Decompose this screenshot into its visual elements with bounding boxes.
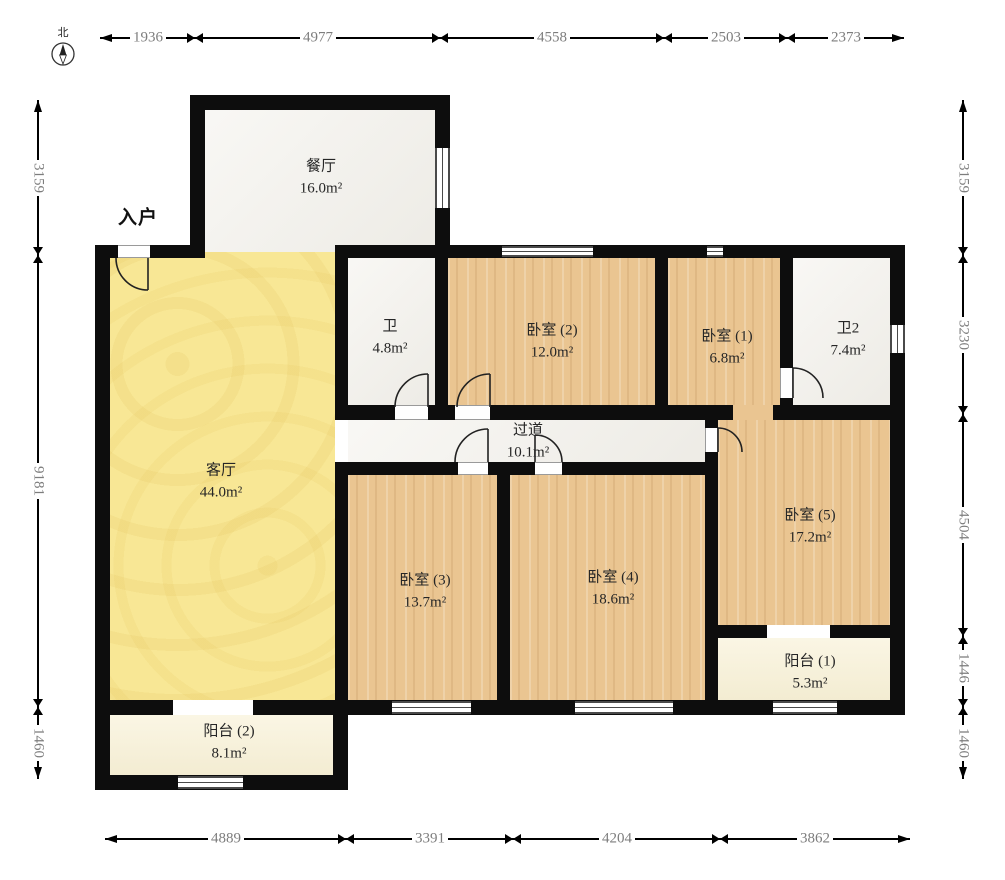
wall-segment bbox=[190, 95, 450, 110]
wall-segment bbox=[335, 245, 348, 420]
room-area: 4.8m² bbox=[373, 338, 408, 360]
door-threshold bbox=[535, 462, 562, 475]
room-area: 10.1m² bbox=[507, 442, 549, 464]
dim-arrow bbox=[892, 34, 904, 42]
room-name: 卧室 (5) bbox=[784, 505, 835, 527]
room-label-dining: 餐厅 16.0m² bbox=[300, 156, 342, 200]
dim-label: 4889 bbox=[208, 831, 244, 848]
bedroom1-opening bbox=[733, 405, 773, 420]
floor-plan: 餐厅 16.0m² 客厅 44.0m² 卫 4.8m² 卧室 (2) 12.0m… bbox=[0, 0, 1005, 880]
bedroom3-door-arc bbox=[455, 429, 489, 463]
room-label-bedroom4: 卧室 (4) 18.6m² bbox=[587, 567, 638, 611]
window bbox=[773, 701, 837, 714]
dim-label: 2373 bbox=[828, 30, 864, 47]
room-label-bath1: 卫 4.8m² bbox=[373, 316, 408, 360]
compass-north-label: 北 bbox=[58, 26, 69, 39]
dim-line-left bbox=[37, 100, 39, 779]
window bbox=[178, 776, 243, 789]
room-label-balcony1: 阳台 (1) 5.3m² bbox=[784, 651, 835, 695]
wall-segment bbox=[335, 462, 718, 475]
door-threshold bbox=[705, 428, 718, 452]
wall-segment bbox=[335, 245, 905, 258]
room-name: 卧室 (2) bbox=[526, 320, 577, 342]
dim-label: 3159 bbox=[955, 160, 972, 196]
room-area: 6.8m² bbox=[701, 348, 752, 370]
window bbox=[890, 325, 905, 353]
room-name: 阳台 (2) bbox=[203, 721, 254, 743]
room-label-hallway: 过道 10.1m² bbox=[507, 420, 549, 464]
dim-arrow bbox=[898, 835, 910, 843]
compass-icon: 北 bbox=[46, 22, 80, 70]
dim-arrow bbox=[959, 767, 967, 779]
window bbox=[502, 246, 593, 257]
room-label-balcony2: 阳台 (2) 8.1m² bbox=[203, 721, 254, 765]
dim-arrow bbox=[100, 34, 112, 42]
dim-label: 3230 bbox=[955, 317, 972, 353]
wall-segment bbox=[95, 245, 205, 258]
dim-label: 4204 bbox=[599, 831, 635, 848]
dim-tick bbox=[958, 247, 968, 263]
dim-label: 1936 bbox=[130, 30, 166, 47]
balcony2-opening bbox=[173, 700, 253, 715]
bath2-door-arc bbox=[793, 368, 824, 399]
dim-label: 9181 bbox=[30, 463, 47, 499]
dim-arrow bbox=[34, 100, 42, 112]
dim-label: 1460 bbox=[955, 725, 972, 761]
wall-segment bbox=[890, 245, 905, 715]
wall-segment bbox=[190, 95, 205, 258]
dim-tick bbox=[505, 834, 521, 844]
room-area: 13.7m² bbox=[399, 592, 450, 614]
entrance-label: 入户 bbox=[118, 203, 158, 230]
dim-label: 1460 bbox=[30, 725, 47, 761]
window bbox=[392, 701, 471, 714]
room-area: 44.0m² bbox=[200, 482, 242, 504]
room-name: 阳台 (1) bbox=[784, 651, 835, 673]
dim-label: 1446 bbox=[955, 650, 972, 686]
bath1-door-arc bbox=[395, 374, 429, 408]
dim-tick bbox=[958, 406, 968, 422]
dim-label: 3862 bbox=[797, 831, 833, 848]
dim-tick bbox=[33, 247, 43, 263]
dim-label: 3391 bbox=[412, 831, 448, 848]
room-label-bedroom2: 卧室 (2) 12.0m² bbox=[526, 320, 577, 364]
dim-arrow bbox=[34, 767, 42, 779]
room-name: 卫2 bbox=[831, 318, 866, 340]
door-threshold bbox=[458, 462, 488, 475]
dim-tick bbox=[712, 834, 728, 844]
room-name: 餐厅 bbox=[300, 156, 342, 178]
room-name: 卧室 (1) bbox=[701, 326, 752, 348]
room-name: 卧室 (3) bbox=[399, 570, 450, 592]
wall-segment bbox=[335, 463, 348, 715]
entrance-threshold bbox=[118, 245, 150, 258]
wall-segment bbox=[497, 462, 510, 715]
room-area: 5.3m² bbox=[784, 673, 835, 695]
dim-tick bbox=[33, 699, 43, 715]
dim-tick bbox=[958, 628, 968, 644]
bedroom2-door-arc bbox=[457, 374, 491, 408]
dim-tick bbox=[338, 834, 354, 844]
entrance-door-arc bbox=[116, 258, 149, 291]
window bbox=[707, 246, 723, 257]
room-name: 客厅 bbox=[200, 460, 242, 482]
room-label-bedroom1: 卧室 (1) 6.8m² bbox=[701, 326, 752, 370]
door-threshold bbox=[780, 368, 793, 398]
room-area: 12.0m² bbox=[526, 342, 577, 364]
room-area: 16.0m² bbox=[300, 178, 342, 200]
room-label-bedroom5: 卧室 (5) 17.2m² bbox=[784, 505, 835, 549]
dim-label: 2503 bbox=[708, 30, 744, 47]
dim-arrow bbox=[105, 835, 117, 843]
window bbox=[575, 701, 673, 714]
dim-tick bbox=[187, 33, 203, 43]
room-label-bedroom3: 卧室 (3) 13.7m² bbox=[399, 570, 450, 614]
dim-tick bbox=[779, 33, 795, 43]
wall-segment bbox=[655, 258, 668, 420]
room-label-bath2: 卫2 7.4m² bbox=[831, 318, 866, 362]
room-name: 卧室 (4) bbox=[587, 567, 638, 589]
dim-tick bbox=[656, 33, 672, 43]
room-area: 18.6m² bbox=[587, 589, 638, 611]
dim-label: 4504 bbox=[955, 507, 972, 543]
balcony1-opening bbox=[767, 625, 830, 638]
dim-tick bbox=[432, 33, 448, 43]
dim-arrow bbox=[959, 100, 967, 112]
room-area: 17.2m² bbox=[784, 527, 835, 549]
room-label-living: 客厅 44.0m² bbox=[200, 460, 242, 504]
dim-label: 3159 bbox=[30, 160, 47, 196]
wall-segment bbox=[435, 258, 448, 420]
room-name: 卫 bbox=[373, 316, 408, 338]
room-name: 过道 bbox=[507, 420, 549, 442]
dim-label: 4977 bbox=[300, 30, 336, 47]
window bbox=[435, 148, 450, 208]
dim-tick bbox=[958, 699, 968, 715]
room-area: 8.1m² bbox=[203, 743, 254, 765]
dim-label: 4558 bbox=[534, 30, 570, 47]
room-area: 7.4m² bbox=[831, 340, 866, 362]
bedroom5-door-arc bbox=[718, 428, 743, 453]
